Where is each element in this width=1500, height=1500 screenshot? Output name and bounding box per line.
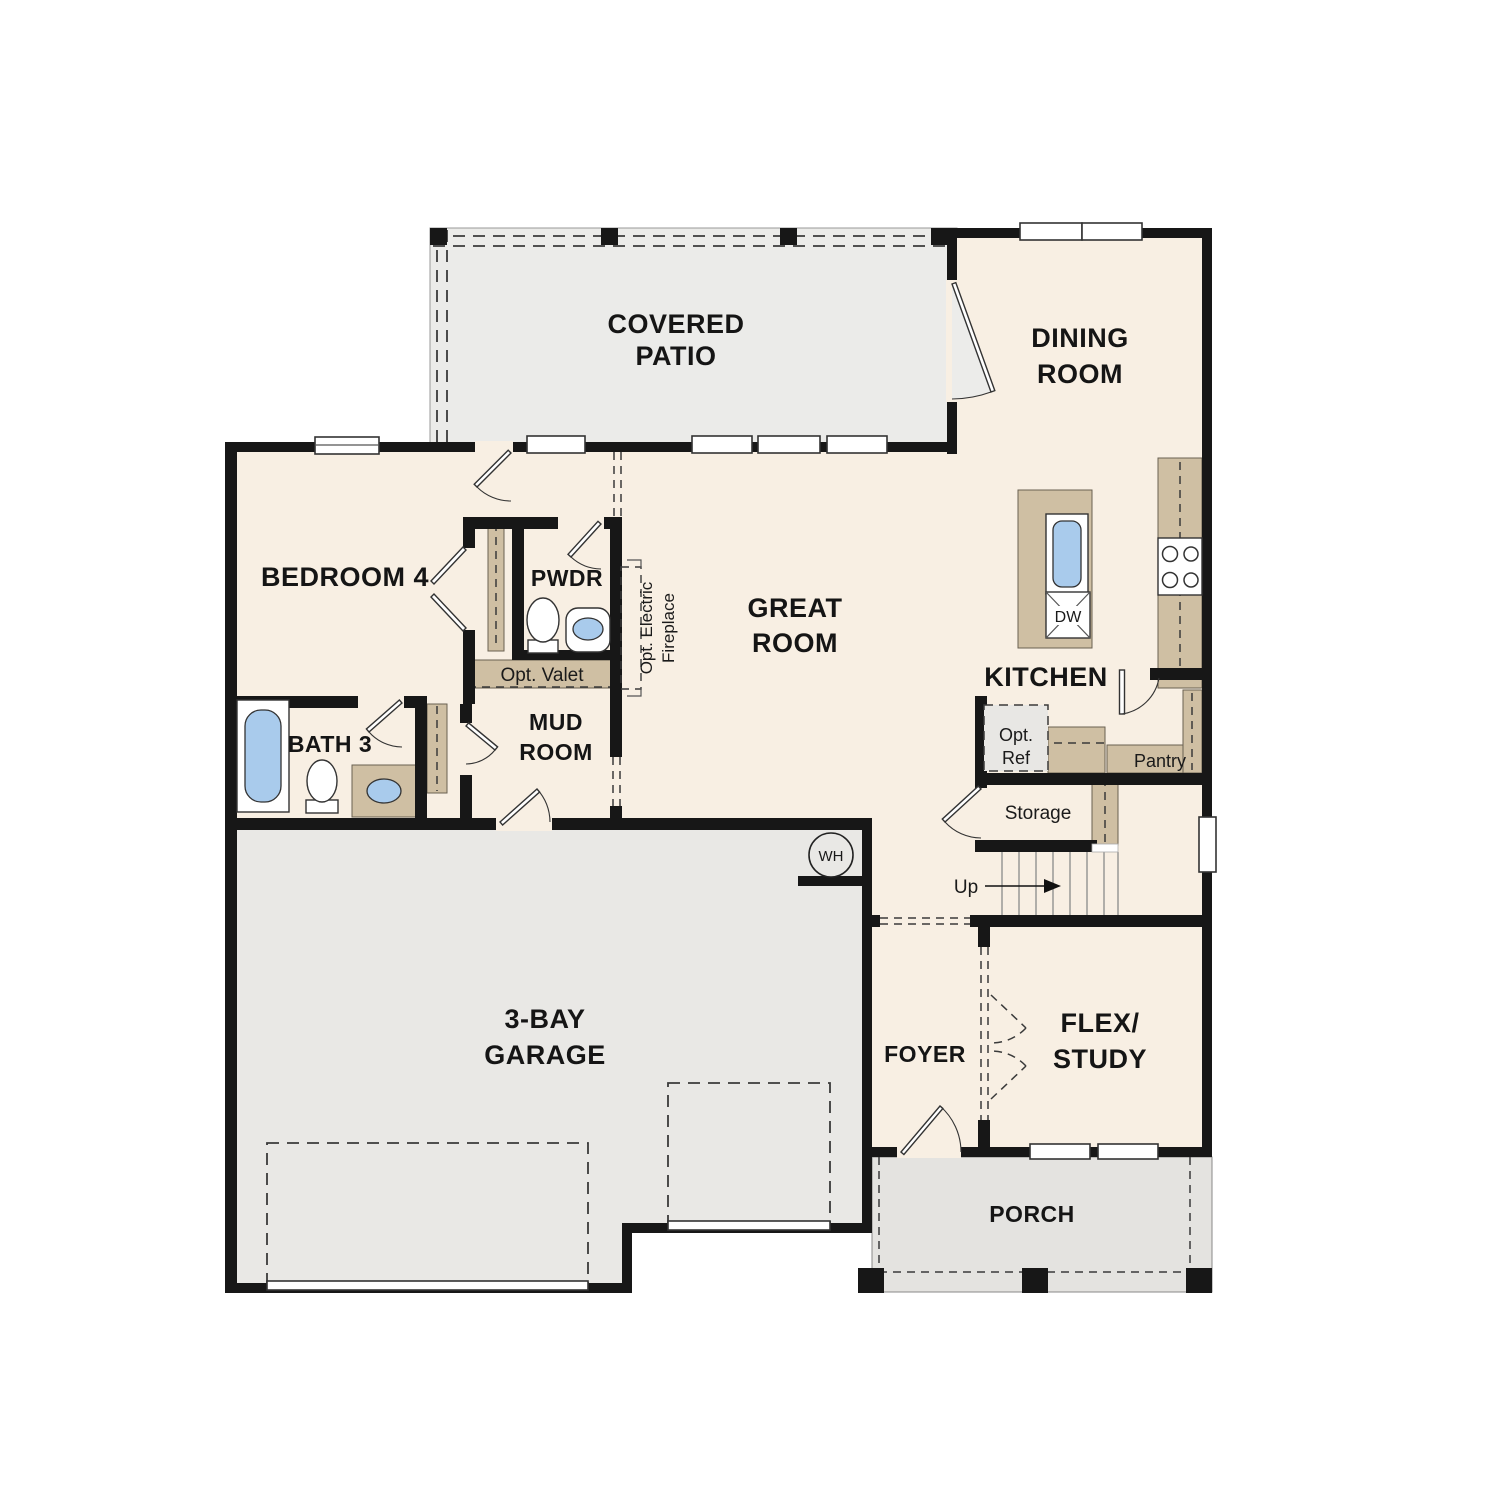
label-opt-fireplace: Opt. Electric (637, 581, 656, 674)
cooktop (1158, 538, 1202, 595)
wall-pantry-top (1150, 668, 1202, 680)
garage-overhead-door (668, 1221, 830, 1230)
wall-mud-right-upper (610, 690, 622, 757)
label-garage: 3-BAY (504, 1004, 585, 1034)
toilet-bowl (307, 760, 337, 802)
wall-bath3-right (415, 696, 427, 818)
label-mud-room: ROOM (519, 739, 593, 765)
label-opt-ref: Opt. (999, 725, 1033, 745)
wall-left-exterior (225, 442, 237, 1293)
wall-right-exterior (1202, 228, 1212, 1157)
foyer-flex-floor (872, 915, 1212, 1152)
opening-bedroom4-doors (462, 548, 476, 630)
label-bath3: BATH 3 (288, 731, 372, 757)
floor-plan-page: COVERED PATIO DINING ROOM BEDROOM 4 PWDR… (0, 0, 1500, 1500)
label-dw: DW (1055, 609, 1083, 626)
label-dining: DINING (1031, 323, 1129, 353)
window (527, 436, 585, 453)
label-dining: ROOM (1037, 359, 1123, 389)
window (1082, 223, 1142, 240)
window (1020, 223, 1082, 240)
label-storage: Storage (1005, 803, 1072, 824)
porch-post (858, 1268, 884, 1293)
patio-post (430, 228, 447, 245)
patio-post (601, 228, 618, 245)
label-opt-valet: Opt. Valet (500, 665, 584, 686)
window (1199, 817, 1216, 872)
label-covered-patio: PATIO (636, 341, 717, 371)
label-great-room: GREAT (748, 593, 843, 623)
label-mud-room: MUD (529, 709, 583, 735)
wall-pwdr-right (610, 517, 622, 697)
label-kitchen: KITCHEN (984, 662, 1108, 692)
door-pantry (1120, 670, 1125, 714)
bath3-sink (367, 779, 401, 803)
garage-overhead-door (267, 1281, 588, 1290)
label-opt-ref: Ref (1002, 748, 1031, 768)
patio-post (780, 228, 797, 245)
wall-pwdr-left (512, 517, 524, 660)
label-flex-study: FLEX/ (1060, 1008, 1139, 1038)
opening-foyer (880, 914, 970, 928)
wall-storage-bottom (975, 840, 1097, 852)
kitchen-back-cabinet (1048, 727, 1105, 773)
opening-storage-door (974, 788, 988, 840)
window (1030, 1144, 1090, 1159)
window (827, 436, 887, 453)
wall-garage-right (862, 818, 872, 1233)
label-flex-study: STUDY (1053, 1044, 1147, 1074)
porch-post (1022, 1268, 1048, 1293)
floor-plan-drawing: COVERED PATIO DINING ROOM BEDROOM 4 PWDR… (0, 0, 1500, 1500)
patio-post (931, 228, 948, 245)
label-bedroom4: BEDROOM 4 (261, 562, 429, 592)
opening-flex-doors (977, 947, 991, 1120)
bathtub (245, 710, 281, 802)
label-wh: WH (819, 848, 844, 865)
toilet-bowl (527, 598, 559, 642)
covered-patio-floor (430, 228, 957, 452)
window (692, 436, 752, 453)
label-up: Up (954, 877, 978, 898)
label-porch: PORCH (989, 1201, 1075, 1227)
label-pantry: Pantry (1134, 751, 1186, 771)
wall-garage-step (622, 1223, 632, 1293)
porch-post (1186, 1268, 1212, 1293)
label-opt-fireplace: Fireplace (659, 593, 678, 663)
label-great-room: ROOM (752, 628, 838, 658)
label-pwdr: PWDR (531, 565, 603, 591)
wall-mud-right-lower (610, 806, 622, 830)
wall-pantry-bottom (975, 773, 1207, 785)
label-covered-patio: COVERED (607, 309, 744, 339)
window (758, 436, 820, 453)
window (1098, 1144, 1158, 1159)
stair-landing (1092, 844, 1118, 852)
label-foyer: FOYER (884, 1041, 966, 1067)
kitchen-sink (1053, 521, 1081, 587)
label-garage: GARAGE (484, 1040, 606, 1070)
pwdr-sink (573, 618, 603, 640)
